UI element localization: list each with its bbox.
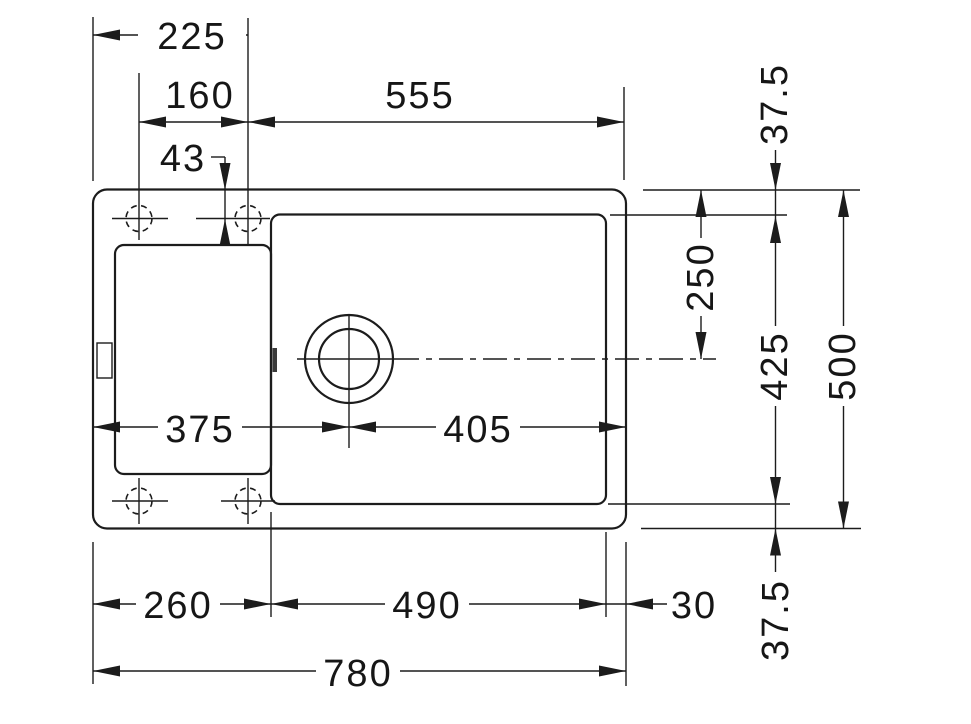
dim-label-37-5-top: 37.5 xyxy=(754,63,796,145)
dim-label-375: 375 xyxy=(165,409,234,451)
sink-technical-drawing: 225 160 555 43 375 405 260 490 30 780 25… xyxy=(0,0,971,724)
dim-label-43: 43 xyxy=(160,138,206,180)
sink-technical-drawing-page: 225 160 555 43 375 405 260 490 30 780 25… xyxy=(0,0,971,724)
dim-label-500: 500 xyxy=(822,331,864,400)
dim-label-260: 260 xyxy=(143,585,212,627)
dim-label-30: 30 xyxy=(671,585,717,627)
dim-label-225: 225 xyxy=(157,16,226,58)
dim-label-250: 250 xyxy=(680,242,722,311)
bowl-edge-mark xyxy=(273,348,278,372)
dim-label-555: 555 xyxy=(385,75,454,117)
dim-label-160: 160 xyxy=(165,75,234,117)
overflow-marker xyxy=(97,343,112,378)
dim-label-490: 490 xyxy=(392,585,461,627)
dim-label-405: 405 xyxy=(443,409,512,451)
dimension-lines xyxy=(93,30,849,677)
dim-label-425: 425 xyxy=(754,331,796,400)
dim-label-37-5-bottom: 37.5 xyxy=(755,579,797,661)
dim-label-780: 780 xyxy=(323,653,392,695)
hole-crosshairs xyxy=(112,219,275,525)
